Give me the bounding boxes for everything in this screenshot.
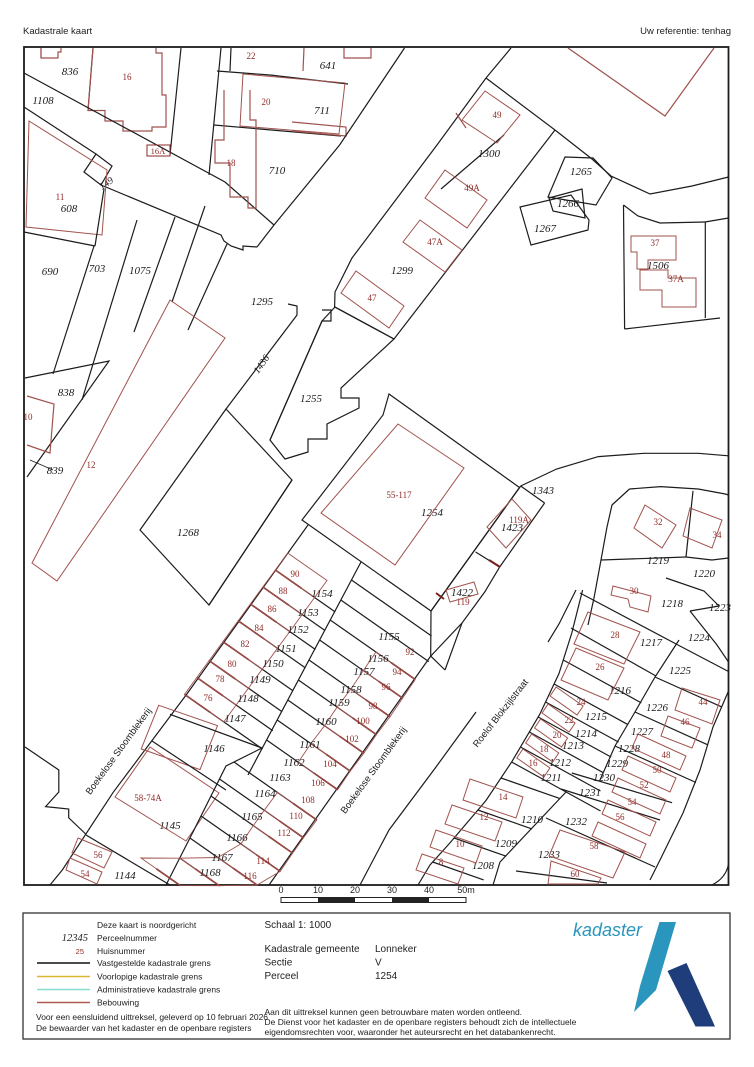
svg-text:28: 28	[611, 630, 621, 640]
svg-text:1255: 1255	[300, 393, 323, 405]
svg-text:710: 710	[269, 165, 286, 177]
svg-text:112: 112	[277, 828, 290, 838]
svg-text:76: 76	[204, 693, 214, 703]
svg-text:32: 32	[654, 517, 663, 527]
svg-text:1232: 1232	[565, 816, 588, 828]
svg-text:10: 10	[456, 839, 466, 849]
svg-text:1224: 1224	[688, 632, 711, 644]
svg-text:1164: 1164	[254, 788, 276, 800]
svg-text:836: 836	[62, 66, 79, 78]
svg-text:110: 110	[289, 811, 303, 821]
svg-text:22: 22	[247, 51, 256, 61]
svg-text:711: 711	[314, 105, 330, 117]
svg-text:54: 54	[628, 797, 638, 807]
svg-text:Administratieve kadastrale gre: Administratieve kadastrale grens	[97, 985, 220, 995]
svg-text:37: 37	[651, 238, 661, 248]
svg-text:1166: 1166	[226, 832, 248, 844]
svg-text:1148: 1148	[237, 693, 259, 705]
svg-text:eigendomsrechten voor, waarond: eigendomsrechten voor, waaronder het aut…	[265, 1027, 556, 1037]
svg-text:1147: 1147	[224, 713, 246, 725]
svg-text:Kadastrale kaart: Kadastrale kaart	[23, 26, 93, 37]
svg-text:1156: 1156	[367, 653, 389, 665]
svg-text:44: 44	[699, 697, 709, 707]
svg-text:Huisnummer: Huisnummer	[97, 946, 145, 956]
svg-text:1209: 1209	[495, 838, 518, 850]
svg-text:108: 108	[301, 795, 315, 805]
svg-text:Lonneker: Lonneker	[375, 944, 417, 955]
svg-text:Kadastrale gemeente: Kadastrale gemeente	[265, 944, 361, 955]
svg-text:25: 25	[76, 947, 84, 956]
svg-text:55-117: 55-117	[386, 490, 412, 500]
svg-text:1226: 1226	[646, 702, 669, 714]
svg-text:1266: 1266	[557, 198, 580, 210]
svg-text:1154: 1154	[311, 588, 333, 600]
svg-text:1220: 1220	[693, 568, 716, 580]
svg-text:90: 90	[291, 569, 301, 579]
svg-text:1075: 1075	[129, 265, 152, 277]
svg-text:1144: 1144	[114, 870, 136, 882]
svg-text:40: 40	[424, 885, 434, 895]
svg-text:1228: 1228	[618, 743, 641, 755]
svg-text:18: 18	[227, 158, 237, 168]
svg-text:1155: 1155	[378, 631, 400, 643]
svg-text:58-74A: 58-74A	[134, 793, 162, 803]
svg-text:12345: 12345	[62, 933, 88, 944]
svg-text:1267: 1267	[534, 223, 557, 235]
svg-text:102: 102	[345, 734, 359, 744]
svg-text:1254: 1254	[375, 971, 398, 982]
svg-text:1212: 1212	[549, 757, 572, 769]
svg-text:10: 10	[24, 412, 34, 422]
svg-text:De Dienst voor het kadaster en: De Dienst voor het kadaster en de openba…	[265, 1017, 577, 1027]
svg-text:Deze kaart is noordgericht: Deze kaart is noordgericht	[97, 920, 197, 930]
svg-text:1229: 1229	[606, 758, 629, 770]
svg-text:16A: 16A	[151, 146, 167, 156]
svg-text:20: 20	[262, 97, 272, 107]
svg-text:30: 30	[387, 885, 397, 895]
svg-text:1214: 1214	[575, 728, 598, 740]
svg-text:30: 30	[630, 586, 640, 596]
svg-text:De bewaarder van het kadaster: De bewaarder van het kadaster en de open…	[36, 1023, 251, 1033]
svg-text:47: 47	[368, 293, 378, 303]
svg-text:1223: 1223	[709, 602, 732, 614]
svg-text:1343: 1343	[532, 485, 555, 497]
svg-text:1158: 1158	[340, 684, 362, 696]
svg-text:49A: 49A	[464, 183, 480, 193]
svg-text:1208: 1208	[472, 860, 495, 872]
svg-text:10: 10	[313, 885, 323, 895]
svg-text:20: 20	[553, 730, 563, 740]
svg-text:1295: 1295	[251, 296, 274, 308]
svg-text:1153: 1153	[297, 607, 319, 619]
svg-text:98: 98	[369, 701, 379, 711]
svg-text:1423: 1423	[501, 522, 524, 534]
svg-text:703: 703	[89, 263, 106, 275]
svg-text:Voorlopige kadastrale grens: Voorlopige kadastrale grens	[97, 972, 202, 982]
svg-text:1218: 1218	[661, 598, 684, 610]
svg-text:96: 96	[382, 682, 392, 692]
svg-text:1211: 1211	[540, 772, 561, 784]
svg-text:106: 106	[311, 778, 325, 788]
svg-text:Perceelnummer: Perceelnummer	[97, 933, 157, 943]
svg-text:1160: 1160	[315, 716, 337, 728]
svg-text:1157: 1157	[353, 666, 375, 678]
svg-text:1268: 1268	[177, 527, 200, 539]
svg-text:838: 838	[58, 387, 75, 399]
svg-text:Vastgestelde kadastrale grens: Vastgestelde kadastrale grens	[97, 958, 211, 968]
svg-text:1219: 1219	[647, 555, 670, 567]
svg-text:641: 641	[320, 60, 337, 72]
svg-text:12: 12	[87, 460, 96, 470]
svg-text:1108: 1108	[32, 95, 54, 107]
svg-text:1231: 1231	[579, 787, 601, 799]
svg-text:47A: 47A	[427, 237, 443, 247]
svg-text:56: 56	[94, 850, 104, 860]
svg-text:8: 8	[439, 857, 444, 867]
svg-text:114: 114	[256, 856, 270, 866]
svg-text:0: 0	[278, 885, 283, 895]
svg-text:14: 14	[499, 792, 509, 802]
svg-text:1265: 1265	[570, 166, 593, 178]
svg-text:50: 50	[653, 765, 663, 775]
svg-text:34: 34	[713, 530, 723, 540]
svg-text:608: 608	[61, 203, 78, 215]
svg-text:1151: 1151	[275, 643, 296, 655]
svg-text:104: 104	[323, 759, 337, 769]
svg-text:1300: 1300	[478, 148, 501, 160]
svg-text:1149: 1149	[249, 674, 271, 686]
svg-text:1215: 1215	[585, 711, 608, 723]
svg-text:1162: 1162	[283, 757, 305, 769]
svg-text:1230: 1230	[593, 772, 616, 784]
svg-text:16: 16	[123, 72, 133, 82]
svg-text:1217: 1217	[640, 637, 663, 649]
svg-text:11: 11	[56, 192, 65, 202]
svg-text:26: 26	[596, 662, 606, 672]
svg-text:1165: 1165	[241, 811, 263, 823]
svg-text:94: 94	[393, 667, 403, 677]
svg-text:1152: 1152	[287, 624, 309, 636]
svg-text:V: V	[375, 958, 382, 969]
svg-text:kadaster: kadaster	[573, 920, 643, 940]
svg-text:92: 92	[406, 647, 415, 657]
svg-text:Aan dit uittreksel kunnen geen: Aan dit uittreksel kunnen geen betrouwba…	[265, 1007, 523, 1017]
svg-text:1168: 1168	[199, 867, 221, 879]
svg-text:Bebouwing: Bebouwing	[97, 998, 139, 1008]
svg-text:Sectie: Sectie	[265, 958, 293, 969]
svg-text:1167: 1167	[211, 852, 233, 864]
svg-text:37A: 37A	[668, 274, 684, 284]
svg-text:1150: 1150	[262, 658, 284, 670]
svg-text:78: 78	[216, 674, 226, 684]
svg-text:Uw referentie: tenhag: Uw referentie: tenhag	[640, 26, 731, 37]
svg-text:80: 80	[228, 659, 238, 669]
svg-text:1299: 1299	[391, 265, 414, 277]
svg-text:Perceel: Perceel	[265, 971, 299, 982]
svg-text:16: 16	[529, 758, 539, 768]
svg-text:1210: 1210	[521, 814, 544, 826]
svg-text:20: 20	[350, 885, 360, 895]
svg-text:88: 88	[279, 586, 289, 596]
svg-text:690: 690	[42, 266, 59, 278]
svg-text:49: 49	[493, 110, 503, 120]
svg-text:Voor een eensluidend uittrekse: Voor een eensluidend uittreksel, gelever…	[36, 1012, 268, 1022]
svg-text:1163: 1163	[269, 772, 291, 784]
svg-text:50m: 50m	[457, 885, 475, 895]
svg-text:100: 100	[356, 716, 370, 726]
svg-text:1161: 1161	[299, 739, 320, 751]
svg-text:48: 48	[662, 750, 672, 760]
svg-text:86: 86	[268, 604, 278, 614]
svg-text:1225: 1225	[669, 665, 692, 677]
svg-text:82: 82	[241, 639, 250, 649]
svg-text:116: 116	[243, 871, 257, 881]
svg-text:Schaal 1: 1000: Schaal 1: 1000	[265, 920, 332, 931]
svg-text:839: 839	[47, 465, 64, 477]
svg-text:1159: 1159	[328, 697, 350, 709]
svg-text:84: 84	[255, 623, 265, 633]
